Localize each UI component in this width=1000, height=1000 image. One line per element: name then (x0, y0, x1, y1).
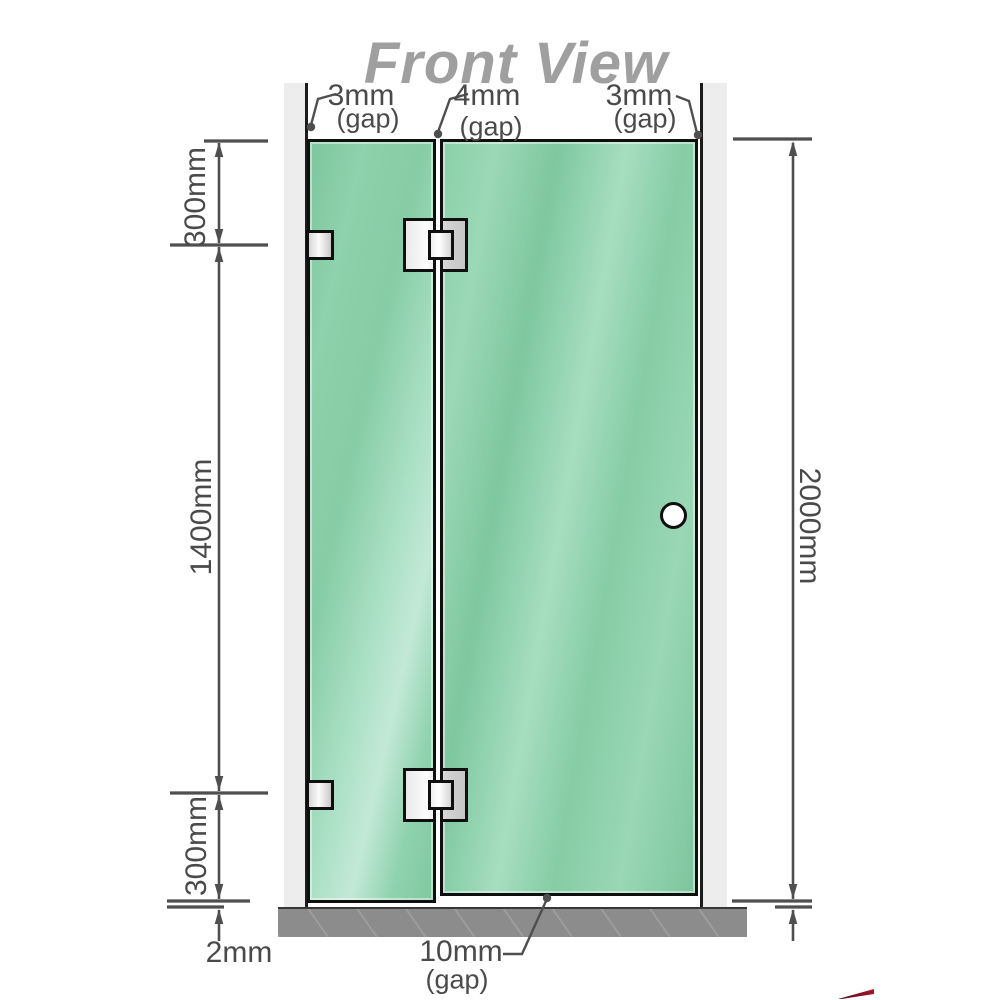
corner-logo-fragment (838, 989, 874, 999)
left-wall-channel (284, 83, 308, 908)
dimension-label-left-bottom: 300mm (182, 796, 212, 896)
gap-label-top-middle-value: 4mm (454, 81, 521, 111)
gap-label-top-left-qualifier: (gap) (336, 106, 399, 133)
dimension-label-left-middle: 1400mm (187, 459, 217, 576)
dimension-label-total-height: 2000mm (794, 468, 824, 585)
wall-bracket-bottom (306, 780, 334, 810)
hinge-top-clamp (428, 230, 454, 260)
wall-bracket-top (306, 230, 334, 260)
gap-label-bottom-value: 10mm (419, 937, 502, 967)
gap-label-top-right-qualifier: (gap) (613, 106, 676, 133)
gap-label-bottom-qualifier: (gap) (425, 967, 488, 994)
door-handle-knob (660, 502, 687, 529)
dimension-label-floor-gap: 2mm (206, 938, 273, 968)
right-wall-channel (700, 83, 727, 908)
floor-hatch-pattern (278, 909, 747, 937)
front-view-diagram: Front View (0, 0, 1000, 1000)
floor-base (278, 907, 747, 937)
gap-label-top-middle-qualifier: (gap) (459, 114, 522, 141)
dimension-label-left-top: 300mm (181, 147, 211, 247)
hinge-bottom-clamp (428, 780, 454, 810)
